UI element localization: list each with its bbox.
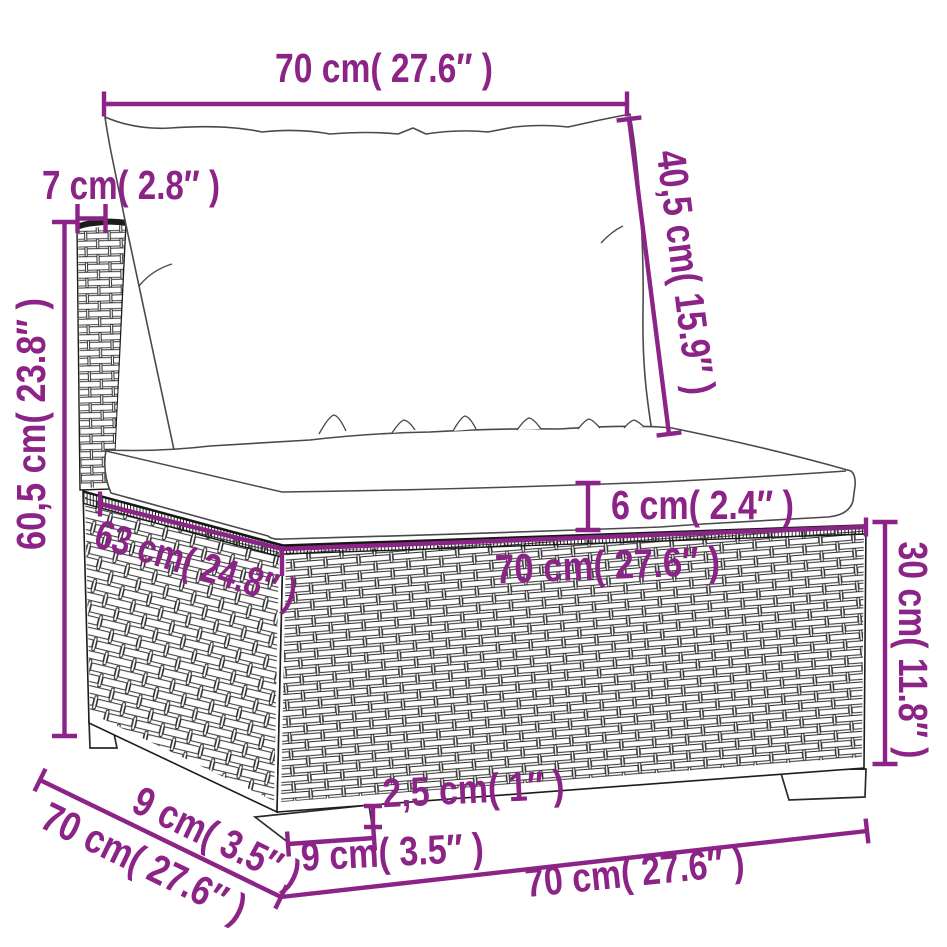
svg-text:7 cm( 2.8″ ): 7 cm( 2.8″ ) [42, 162, 220, 208]
svg-text:70 cm( 27.6″ ): 70 cm( 27.6″ ) [494, 538, 721, 593]
svg-text:70 cm( 27.6″ ): 70 cm( 27.6″ ) [275, 45, 493, 91]
svg-text:6 cm( 2.4″ ): 6 cm( 2.4″ ) [611, 482, 794, 528]
svg-text:60,5 cm( 23.8″ ): 60,5 cm( 23.8″ ) [8, 298, 54, 550]
svg-text:2,5 cm( 1″ ): 2,5 cm( 1″ ) [381, 762, 565, 817]
svg-text:30 cm( 11.8″ ): 30 cm( 11.8″ ) [890, 542, 936, 759]
svg-text:9 cm( 3.5″ ): 9 cm( 3.5″ ) [300, 824, 485, 880]
